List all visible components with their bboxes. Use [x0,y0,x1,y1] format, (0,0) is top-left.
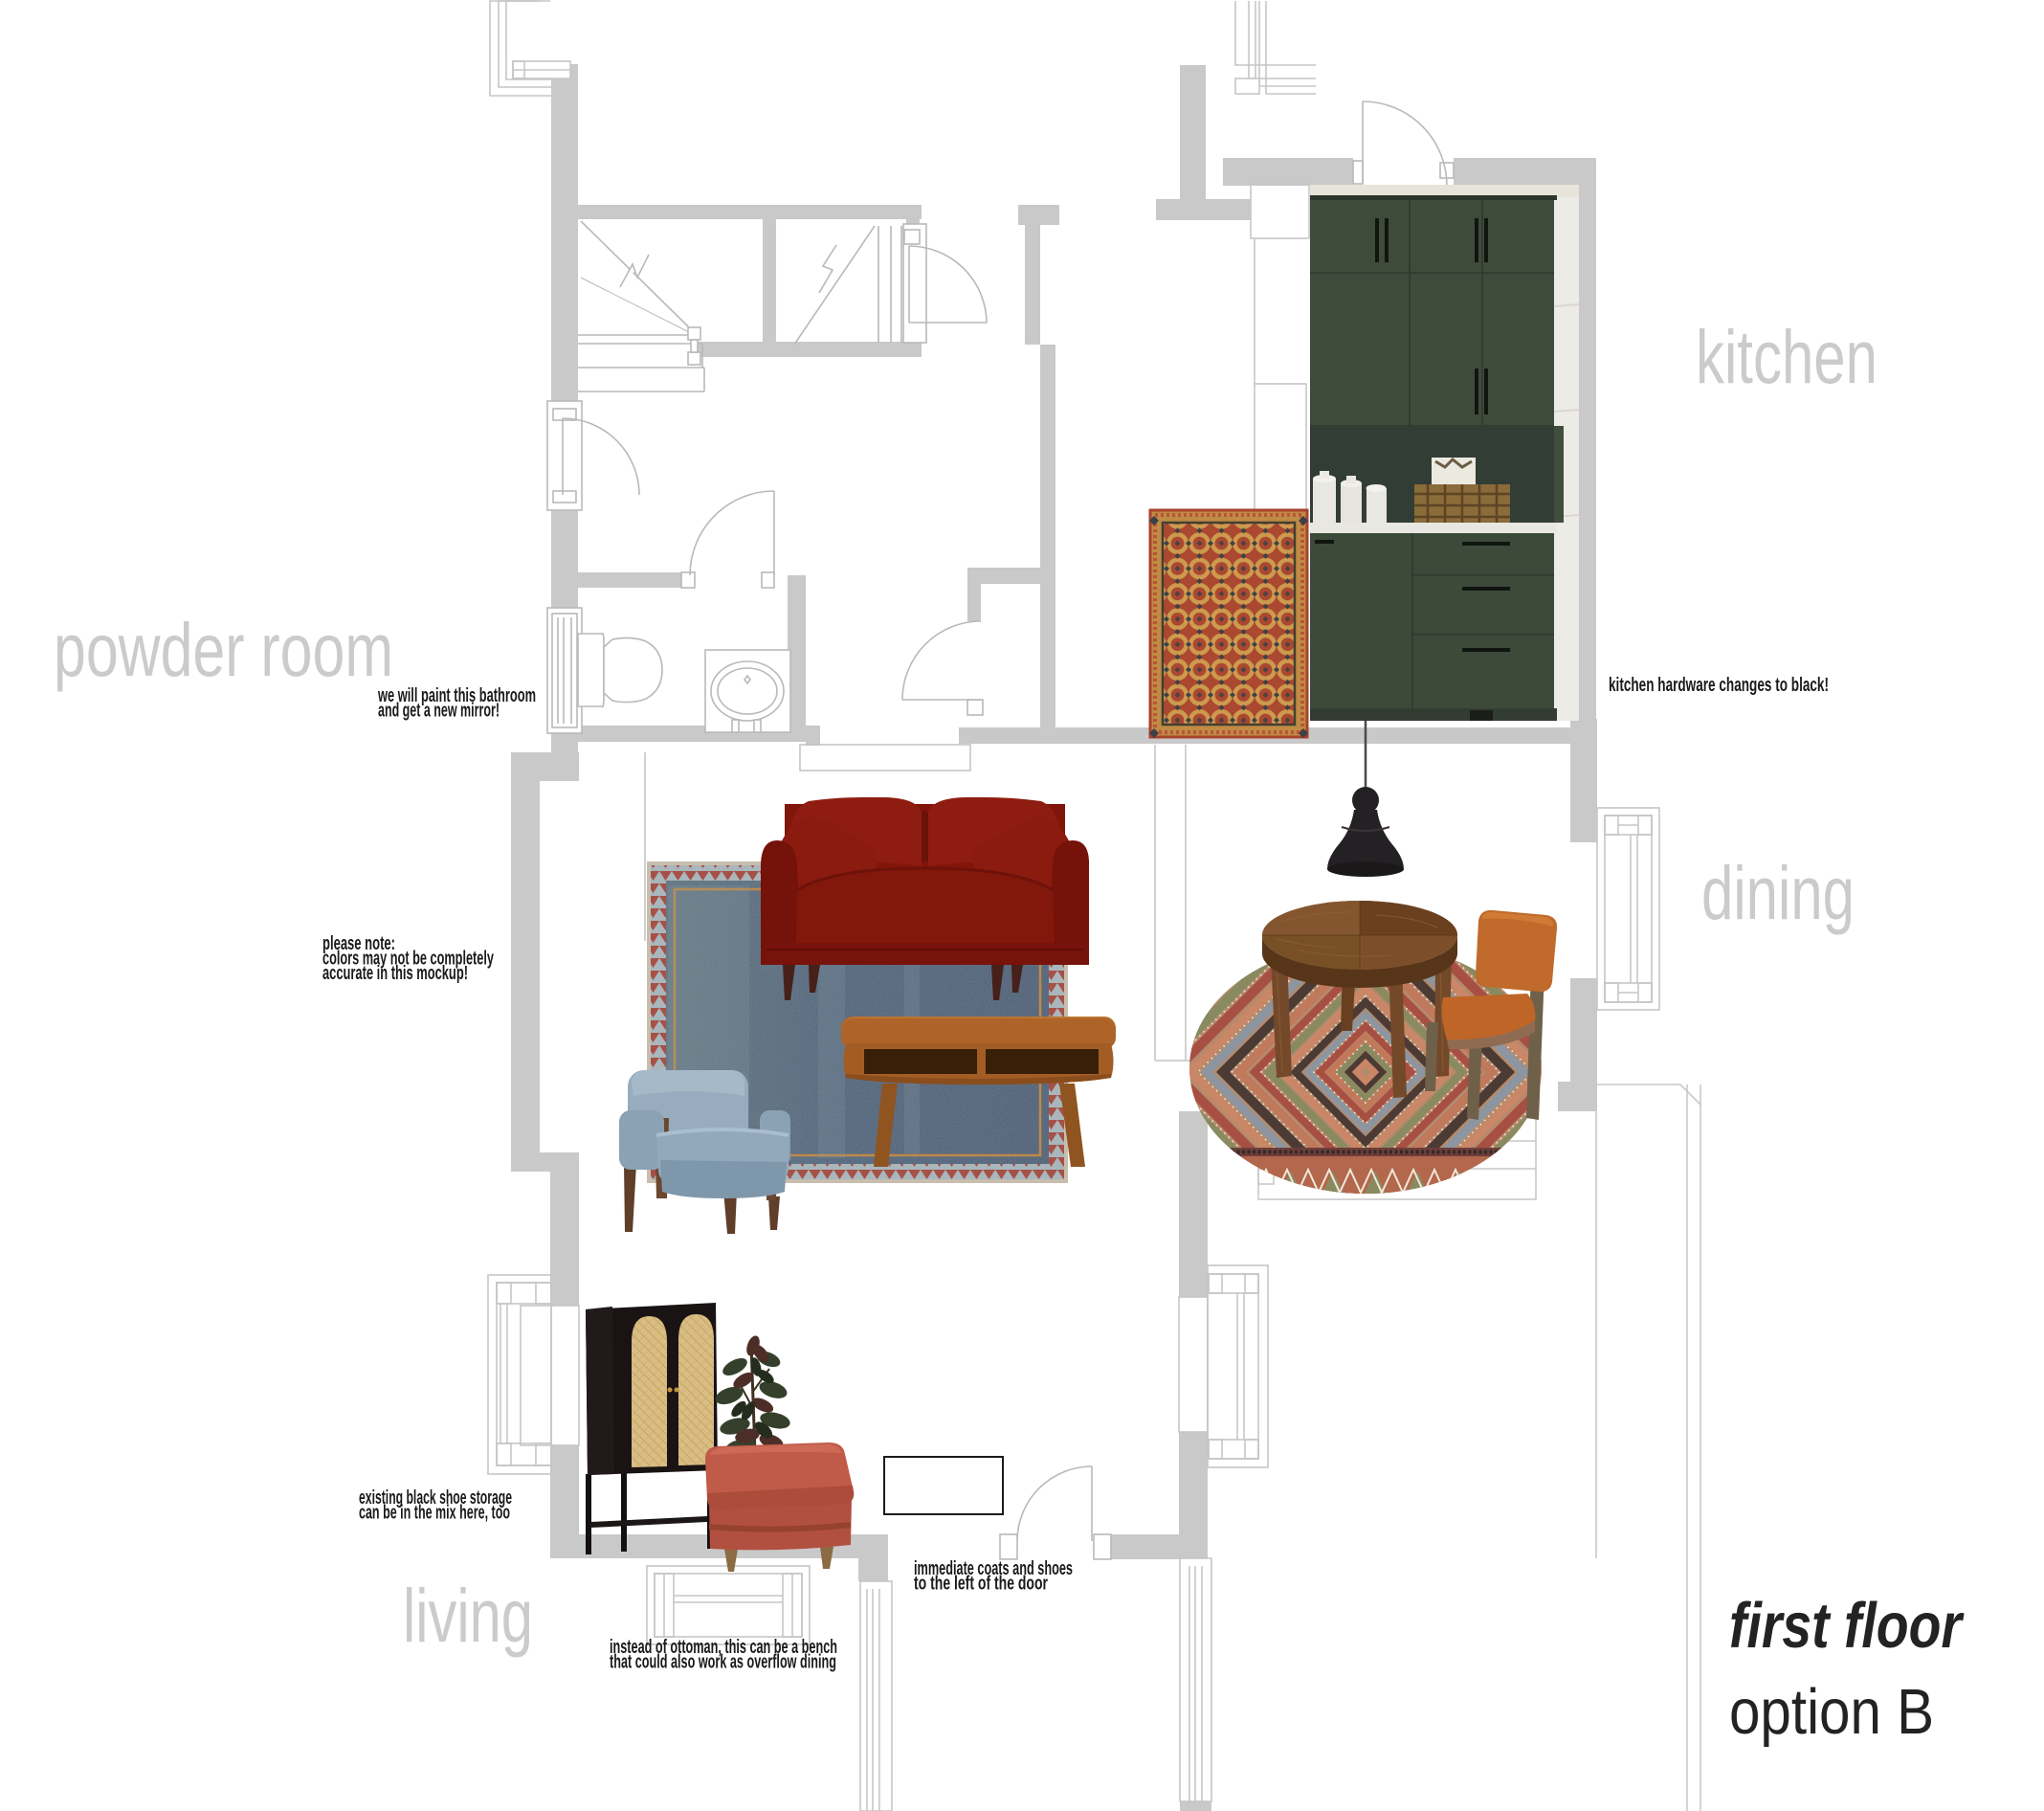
svg-text:first floor: first floor [1729,1590,1965,1662]
svg-text:option B: option B [1729,1676,1934,1748]
svg-text:accurate in this mockup!: accurate in this mockup! [322,963,468,984]
svg-text:kitchen hardware changes to bl: kitchen hardware changes to black! [1609,675,1829,696]
svg-text:to the left of the door: to the left of the door [914,1574,1048,1595]
svg-text:kitchen: kitchen [1696,314,1877,399]
svg-text:dining: dining [1701,850,1855,935]
svg-text:living: living [403,1573,533,1658]
svg-text:powder room: powder room [54,607,393,692]
svg-text:and get a new mirror!: and get a new mirror! [378,701,500,722]
svg-text:can be in the mix here, too: can be in the mix here, too [359,1503,510,1524]
svg-text:that could also work as overfl: that could also work as overflow dining [610,1652,836,1673]
